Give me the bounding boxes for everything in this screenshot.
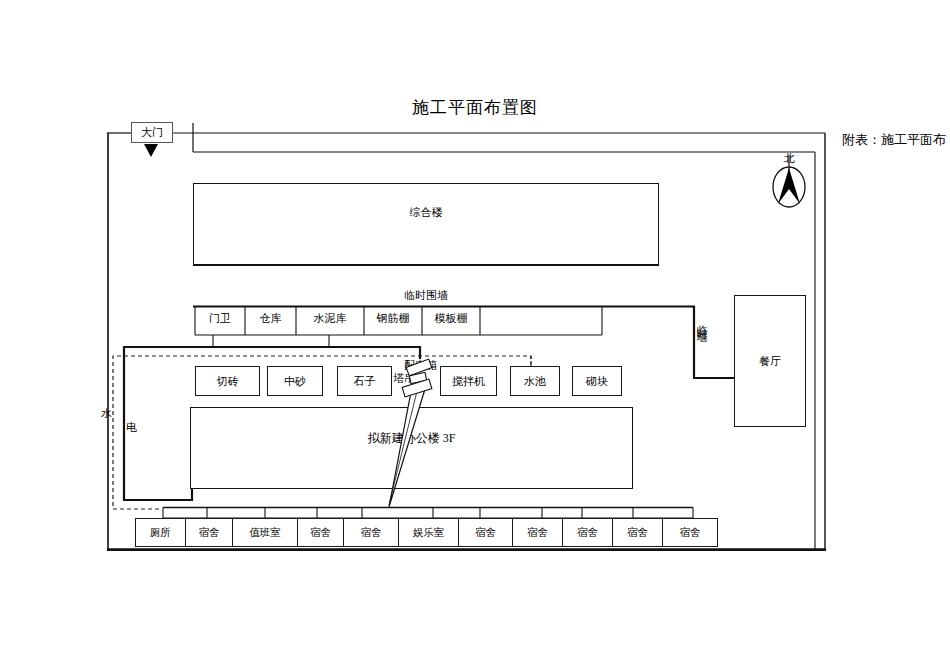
gate-arrow-icon xyxy=(144,144,158,157)
construction-site-plan: 施工平面布置图 附表：施工平面布 大门 综合楼 临时围墙 门卫 仓库 水泥库 钢… xyxy=(0,0,950,672)
tower-crane-drawing xyxy=(389,359,432,507)
site-plan-symbols xyxy=(0,0,950,672)
north-label: 北 xyxy=(784,152,795,164)
